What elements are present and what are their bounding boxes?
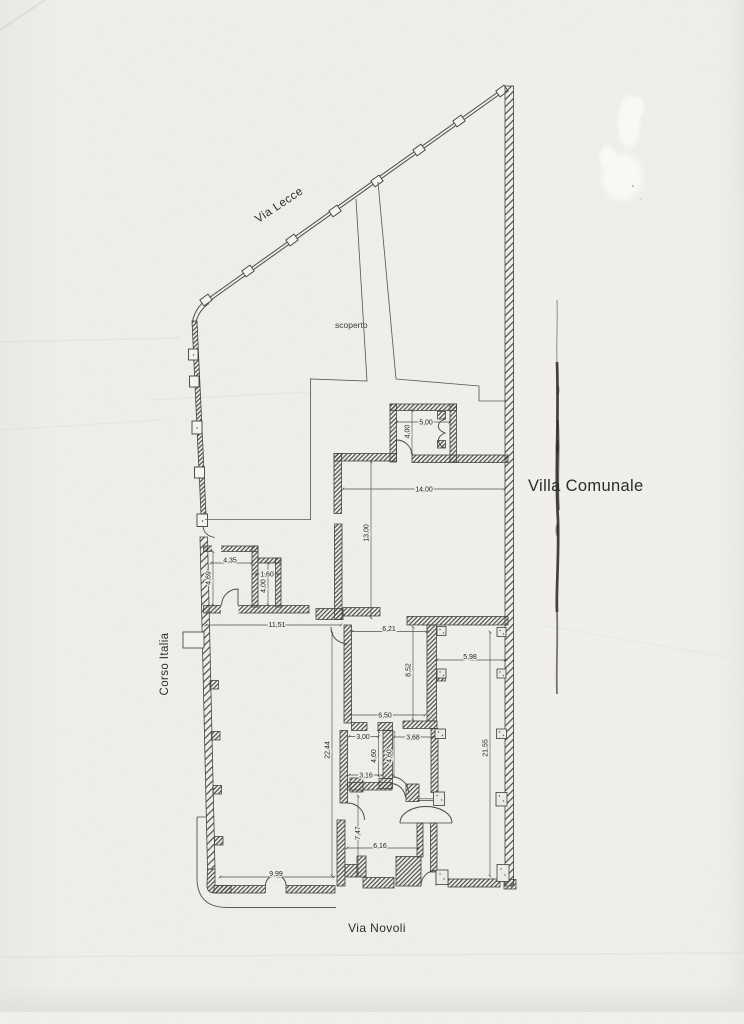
svg-text:8,52: 8,52 <box>406 663 413 677</box>
svg-text:22,44: 22,44 <box>325 741 332 759</box>
svg-text:4,00: 4,00 <box>261 579 268 593</box>
svg-text:21,55: 21,55 <box>483 739 490 757</box>
svg-text:3,68: 3,68 <box>406 735 420 742</box>
svg-text:Villa Comunale: Villa Comunale <box>528 477 644 495</box>
svg-text:4,00: 4,00 <box>405 425 412 439</box>
svg-text:4,60: 4,60 <box>387 749 394 763</box>
svg-text:Via Novoli: Via Novoli <box>348 921 406 935</box>
svg-text:Corso Italia: Corso Italia <box>159 632 171 695</box>
svg-text:6,21: 6,21 <box>382 626 396 633</box>
svg-text:4,69: 4,69 <box>206 571 213 585</box>
svg-text:14,00: 14,00 <box>415 487 433 494</box>
svg-text:11,51: 11,51 <box>269 622 286 629</box>
svg-text:6,16: 6,16 <box>373 843 387 850</box>
svg-text:4,60: 4,60 <box>371 749 378 763</box>
svg-text:9,99: 9,99 <box>269 871 283 878</box>
svg-text:4,35: 4,35 <box>223 558 237 565</box>
svg-text:3,16: 3,16 <box>359 773 373 780</box>
svg-text:5,00: 5,00 <box>419 420 433 427</box>
svg-text:6,50: 6,50 <box>378 713 392 720</box>
svg-text:7,47: 7,47 <box>355 826 362 840</box>
svg-text:3,00: 3,00 <box>356 734 370 741</box>
svg-text:13,00: 13,00 <box>364 524 371 542</box>
svg-text:1,60: 1,60 <box>260 572 274 579</box>
svg-text:5,98: 5,98 <box>463 654 477 661</box>
svg-text:scoperto: scoperto <box>335 320 368 330</box>
